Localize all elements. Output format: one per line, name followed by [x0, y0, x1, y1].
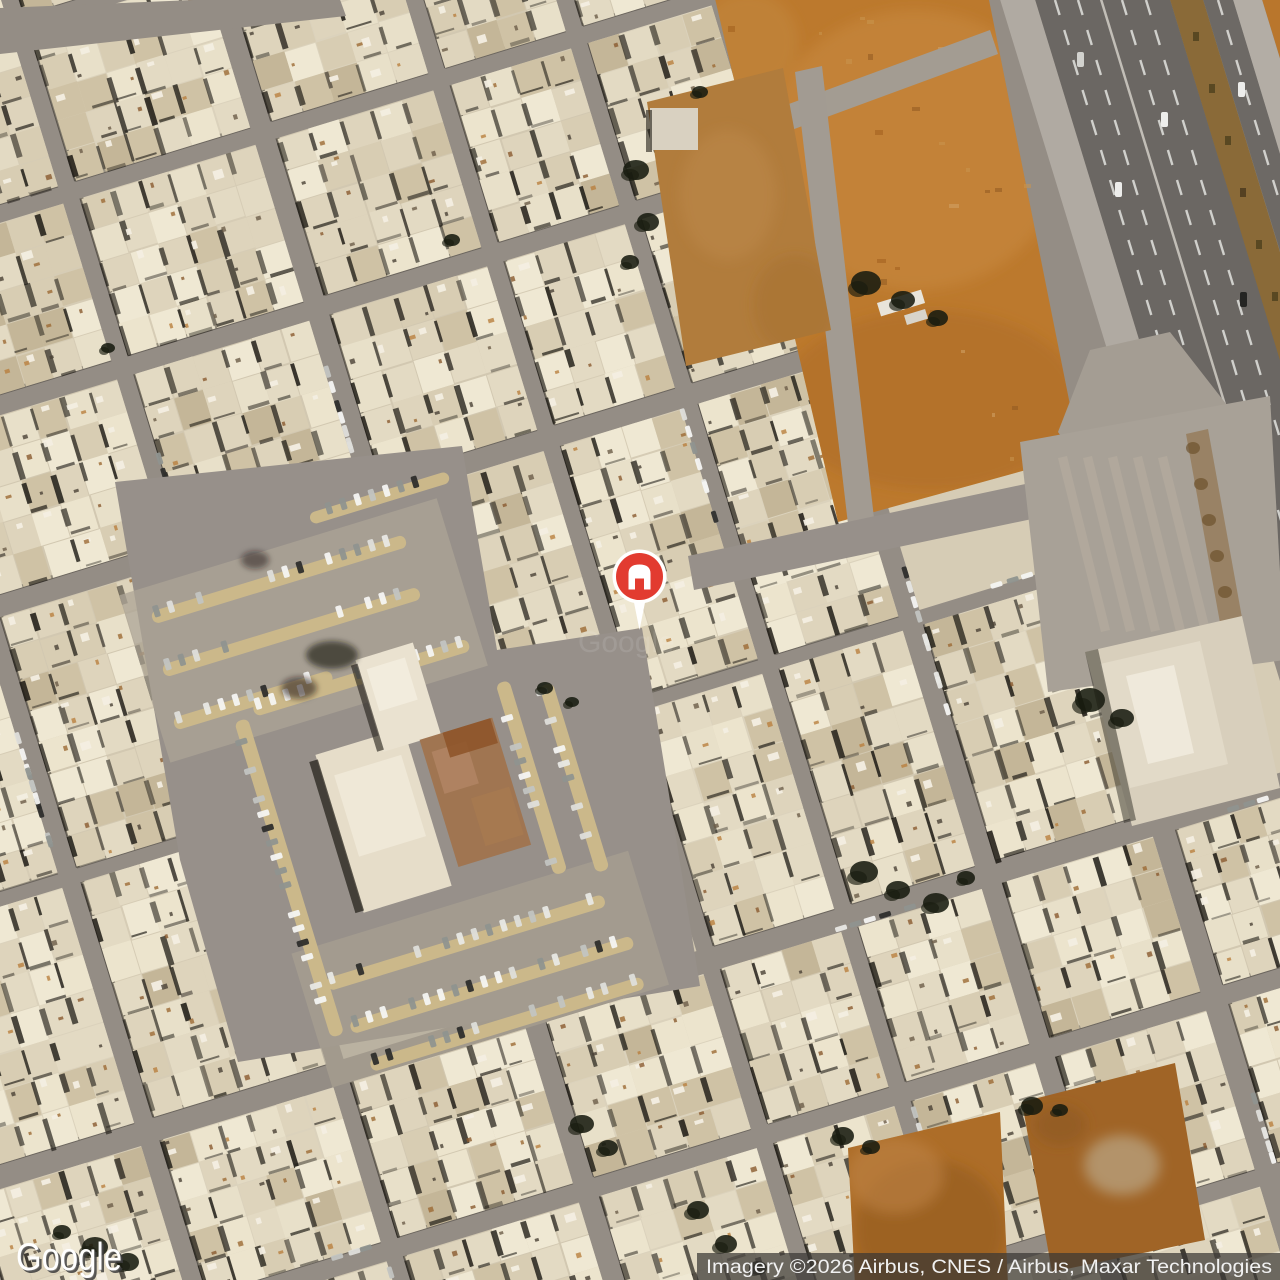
svg-text:Google: Google [578, 626, 675, 659]
svg-text:Google: Google [16, 1236, 122, 1279]
svg-text:Imagery ©2026 Airbus, CNES / A: Imagery ©2026 Airbus, CNES / Airbus, Max… [706, 1256, 1272, 1278]
